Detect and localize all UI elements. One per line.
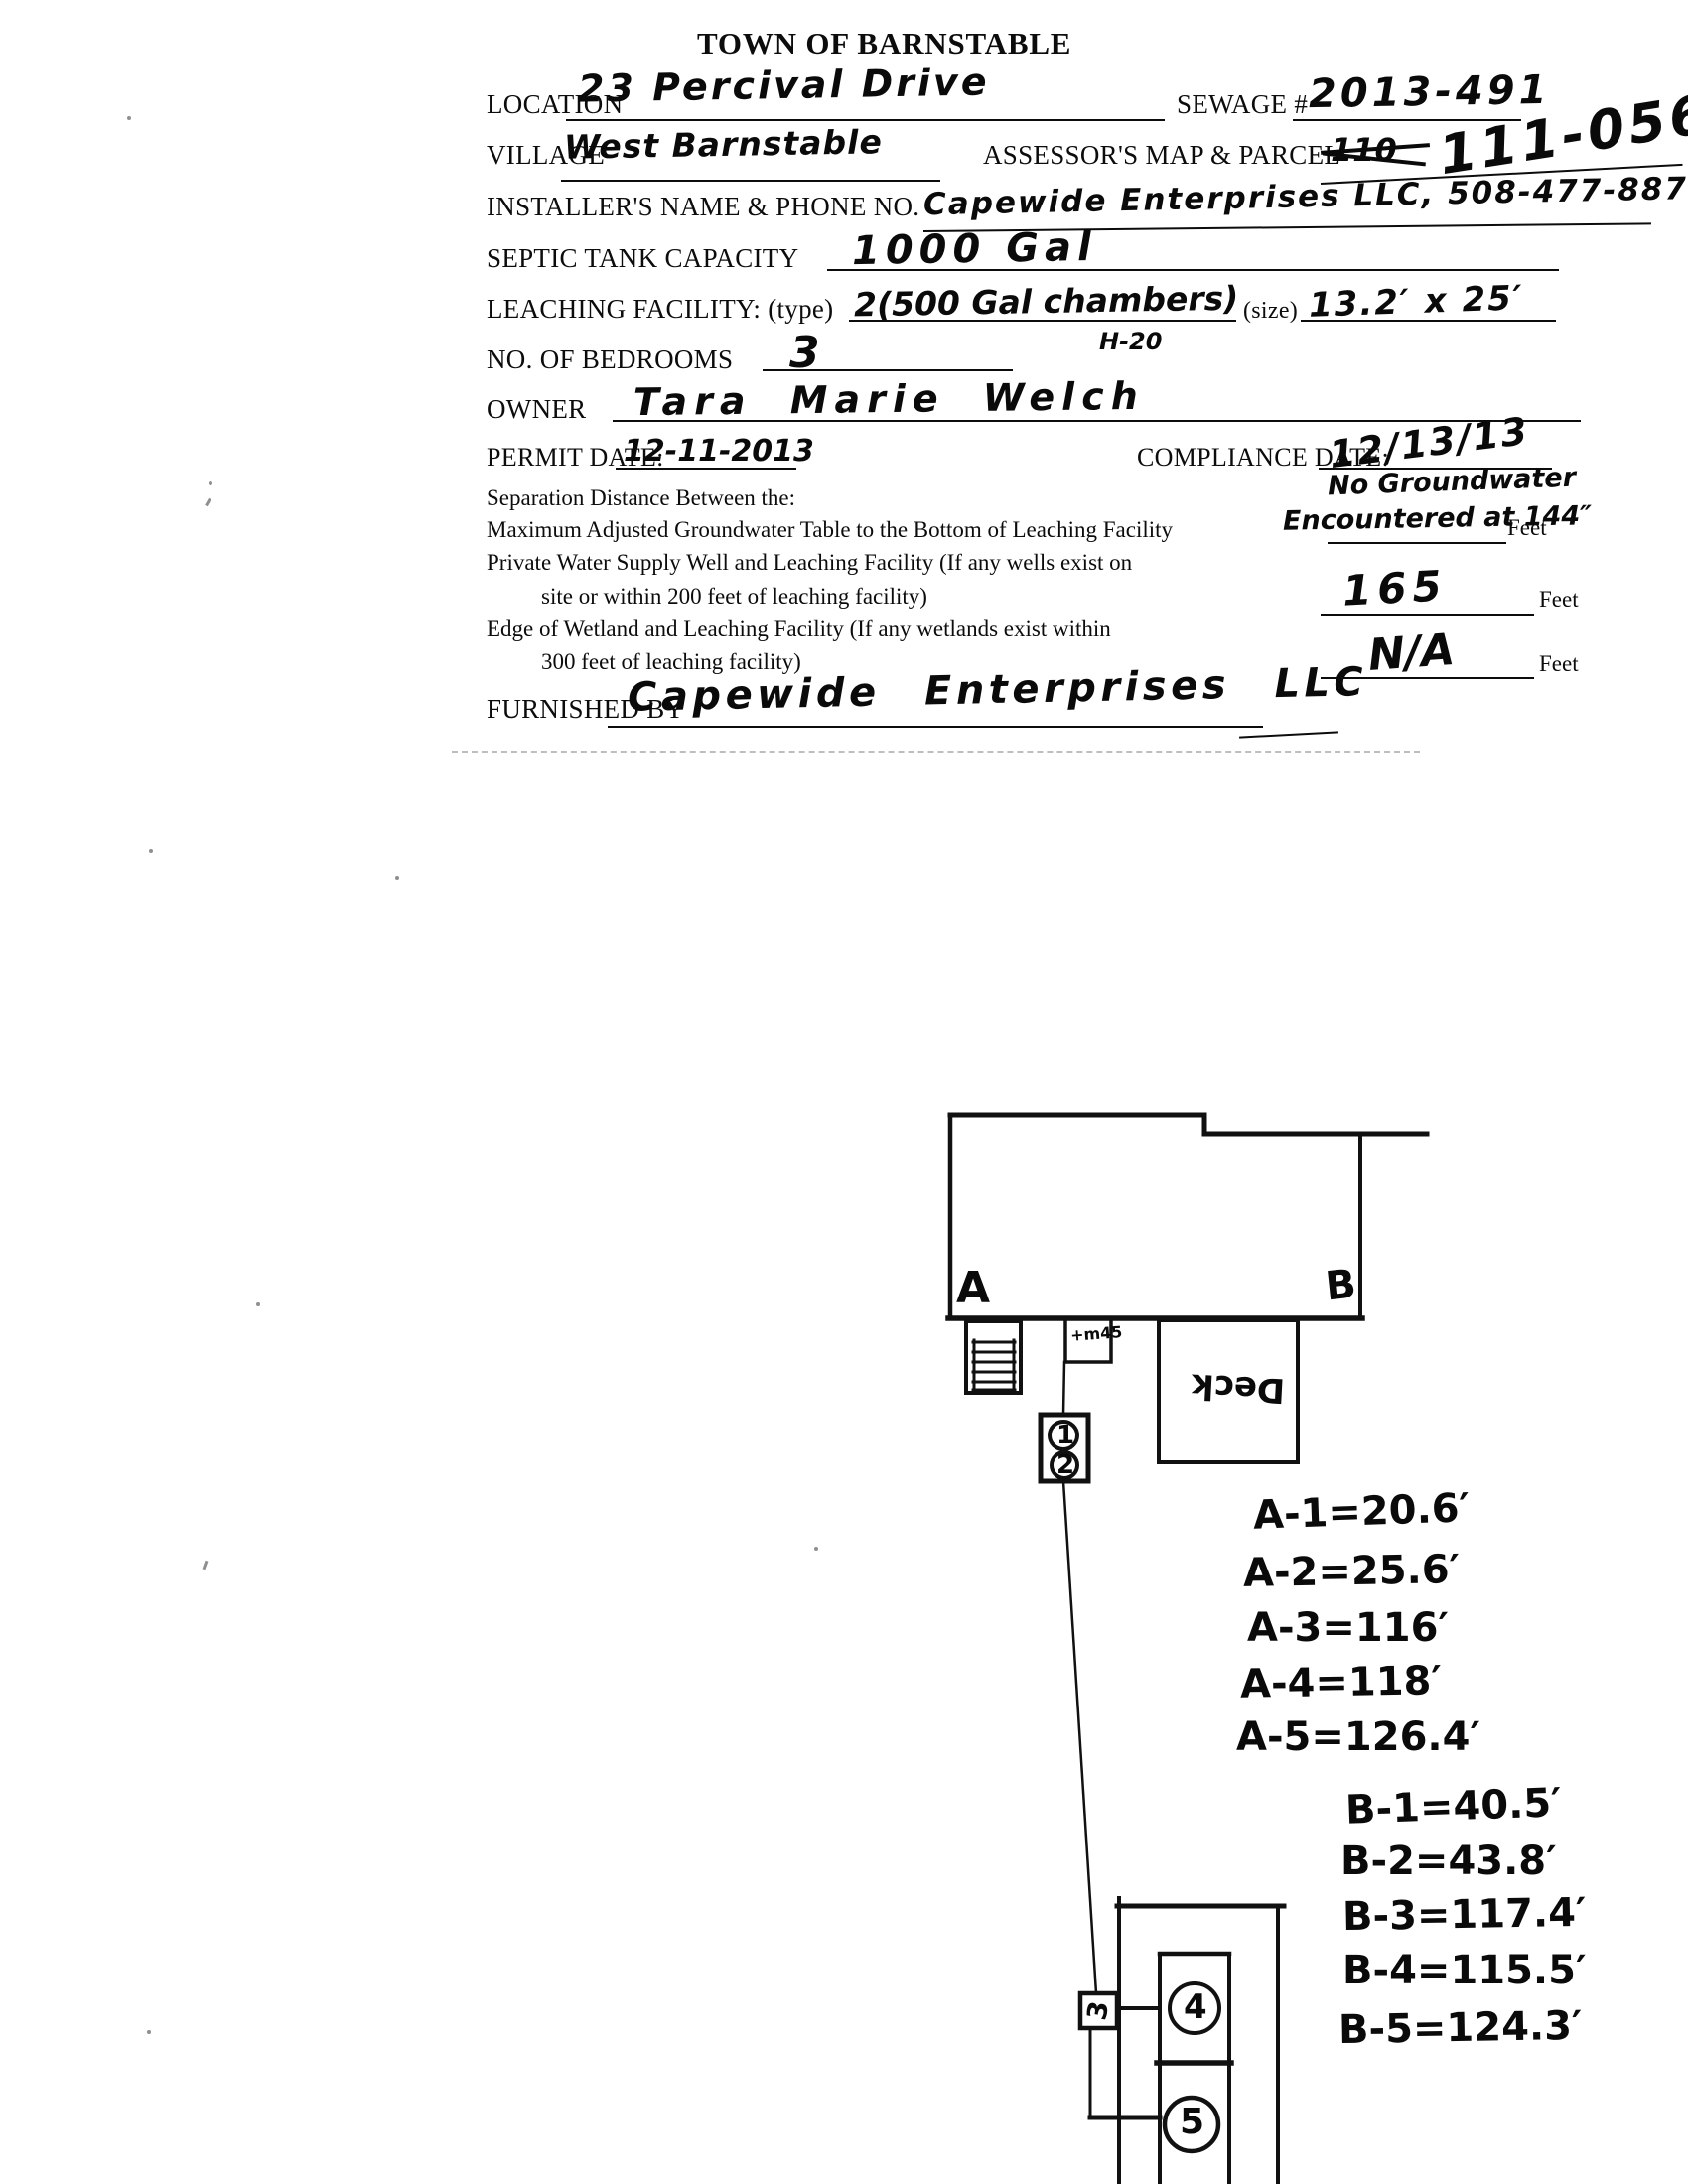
- meter-note: +m45: [1069, 1322, 1123, 1345]
- component-1-label: 1: [1056, 1421, 1074, 1450]
- measurement-b1: B-1=40.5′: [1344, 1780, 1562, 1834]
- measurement-b5: B-5=124.3′: [1338, 2003, 1583, 2053]
- measurement-a1: A-1=20.6′: [1252, 1485, 1471, 1539]
- component-4-label: 4: [1184, 1987, 1207, 2027]
- component-5-label: 5: [1180, 2102, 1204, 2142]
- sketch-corner-a-label: A: [956, 1263, 990, 1313]
- measurement-a4: A-4=118′: [1240, 1658, 1443, 1707]
- measurement-a3: A-3=116′: [1247, 1605, 1449, 1651]
- measurement-b3: B-3=117.4′: [1342, 1890, 1587, 1940]
- deck-label: Deck: [1191, 1366, 1286, 1411]
- scanned-septic-permit-page: TOWN OF BARNSTABLE LOCATION 23 Percival …: [0, 0, 1688, 2184]
- measurement-a2: A-2=25.6′: [1243, 1547, 1461, 1596]
- component-2-label: 2: [1056, 1450, 1074, 1480]
- measurement-a5: A-5=126.4′: [1236, 1714, 1480, 1760]
- measurement-b4: B-4=115.5′: [1342, 1948, 1587, 1993]
- sketch-corner-b-label: B: [1324, 1262, 1358, 1310]
- measurement-b2: B-2=43.8′: [1340, 1839, 1557, 1884]
